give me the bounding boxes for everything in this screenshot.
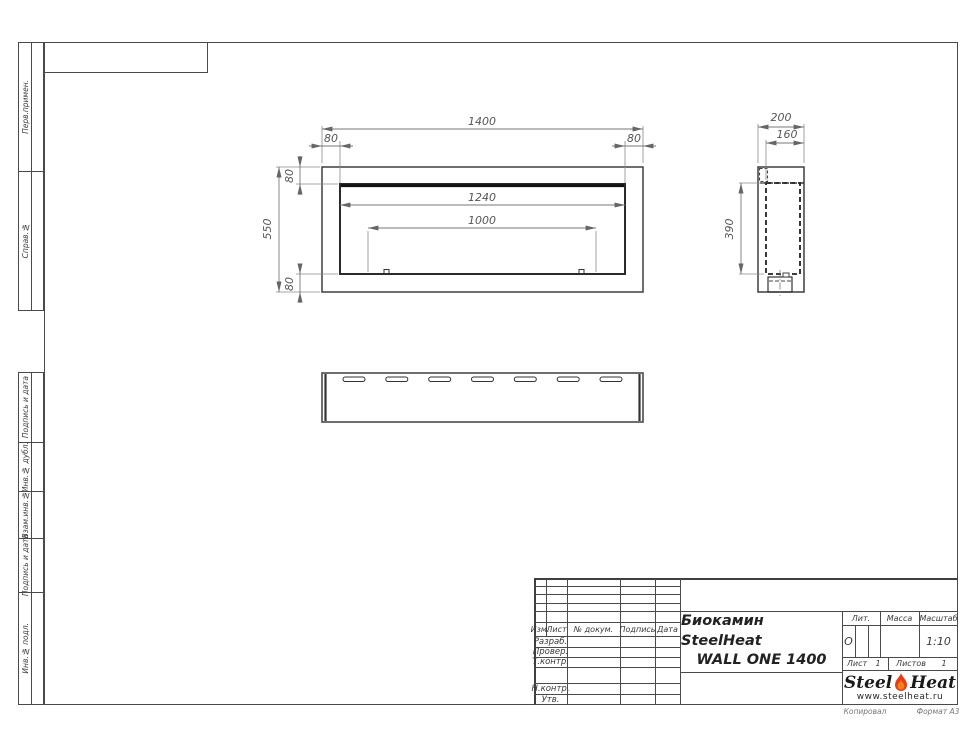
margin-cell-perv-primen: Перв.примен. xyxy=(18,42,44,172)
flame-icon xyxy=(893,673,909,692)
sheet-frame xyxy=(44,42,958,705)
row-prover: Провер. xyxy=(534,647,567,657)
margin-label: Подпись и дата xyxy=(21,534,30,596)
margin-label: Перв.примен. xyxy=(21,80,30,134)
top-left-stamp xyxy=(44,42,208,73)
lit-value: О xyxy=(842,625,855,657)
col-podpis: Подпись xyxy=(620,622,655,636)
scale-value: 1:10 xyxy=(919,625,958,657)
margin-cell-podpis-data-2: Подпись и дата xyxy=(18,538,44,593)
product-title-line2: WALL ONE 1400 xyxy=(697,651,827,671)
col-dokum: № докум. xyxy=(567,622,620,636)
margin-label: Инв.№ дубл. xyxy=(21,442,30,492)
margin-label: Подпись и дата xyxy=(21,376,30,438)
sheet-value: 1 xyxy=(870,657,886,670)
row-utv: Утв. xyxy=(534,694,567,705)
scale-header: Масштаб xyxy=(919,611,958,625)
row-nkontr: Н.контр. xyxy=(534,683,567,694)
lit-header: Лит. xyxy=(842,611,880,625)
mass-header: Масса xyxy=(880,611,919,625)
format-note: Формат А3 xyxy=(898,707,970,716)
margin-label: Справ.№ xyxy=(21,223,30,258)
margin-label: Инв.№ подл. xyxy=(21,623,30,674)
company-logo: Steel Heat www.steelheat.ru xyxy=(842,670,958,705)
sheets-value: 1 xyxy=(934,657,954,670)
sheets-label: Листов xyxy=(892,657,930,670)
margin-cell-podpis-data-1: Подпись и дата xyxy=(18,372,44,443)
copied-by-note: Копировал xyxy=(820,707,910,716)
margin-cell-inv-dubl: Инв.№ дубл. xyxy=(18,442,44,492)
margin-label: Взам.инв.№ xyxy=(21,491,30,538)
product-title: Биокамин SteelHeat WALL ONE 1400 xyxy=(681,611,842,672)
product-title-line1: Биокамин SteelHeat xyxy=(681,612,842,651)
logo-text-heat: Heat xyxy=(910,675,956,692)
logo-website: www.steelheat.ru xyxy=(857,692,943,702)
col-list: Лист xyxy=(546,622,567,636)
row-tkontr: Т.контр. xyxy=(534,657,567,667)
drawing-sheet: 1400 80 80 1240 1000 550 80 80 xyxy=(0,0,970,749)
margin-cell-sprav-no: Справ.№ xyxy=(18,171,44,311)
col-izm: Изм. xyxy=(534,622,546,636)
sheet-label: Лист xyxy=(844,657,870,670)
margin-cell-inv-podl: Инв.№ подл. xyxy=(18,592,44,705)
margin-cell-vzam-inv: Взам.инв.№ xyxy=(18,491,44,539)
col-data: Дата xyxy=(655,622,680,636)
row-razrab: Разраб. xyxy=(534,636,567,647)
logo-text-steel: Steel xyxy=(844,675,892,692)
